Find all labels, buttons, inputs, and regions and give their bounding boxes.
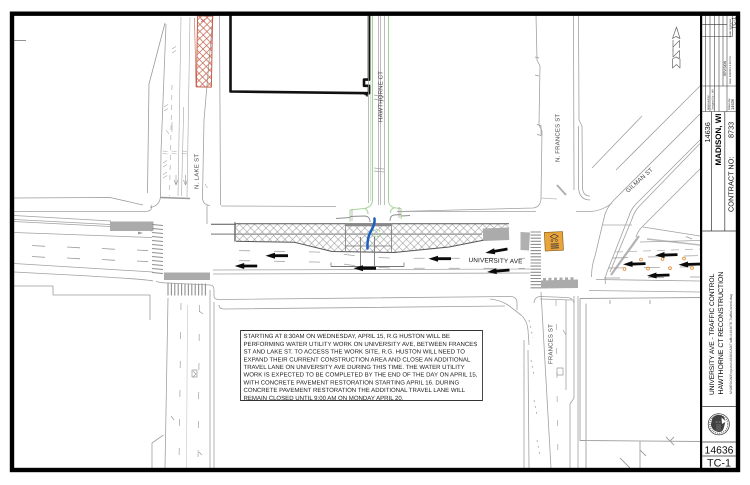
svg-text:14636: 14636 — [730, 98, 735, 110]
svg-text:WORK IS EXPECTED TO BE COMPLET: WORK IS EXPECTED TO BE COMPLETED BY THE … — [244, 372, 478, 379]
svg-text:N. LAKE ST: N. LAKE ST — [194, 154, 201, 189]
svg-text:Date: 4/9/2015 2:35 PM: Date: 4/9/2015 2:35 PM — [729, 57, 732, 84]
svg-text:FRANCES ST: FRANCES ST — [548, 324, 555, 364]
svg-text:Designed By: LMB: Designed By: LMB — [712, 89, 715, 110]
svg-text:MADISON, WI: MADISON, WI — [714, 114, 723, 166]
svg-text:Scale: Unknown: Scale: Unknown — [729, 18, 732, 37]
svg-text:8733: 8733 — [726, 122, 735, 138]
svg-text:Approved By:: Approved By: — [707, 95, 710, 110]
svg-text:TRAVEL LANE ON UNIVERSITY AVE: TRAVEL LANE ON UNIVERSITY AVE DURING THI… — [244, 364, 465, 371]
svg-text:EXPAND THEIR CURRENT CONSTRUCT: EXPAND THEIR CURRENT CONSTRUCTION AREA A… — [244, 356, 471, 363]
svg-text:14636: 14636 — [703, 122, 712, 142]
svg-text:CONTRACT NO:: CONTRACT NO: — [726, 157, 735, 212]
svg-text:N. FRANCES ST: N. FRANCES ST — [555, 114, 562, 162]
svg-text:14636: 14636 — [705, 446, 734, 457]
svg-text:PERFORMING WATER UTILITY WORK: PERFORMING WATER UTILITY WORK ON UNIVERS… — [244, 341, 478, 348]
svg-text:UNIVERSITY AVE - TRAFFIC CONTR: UNIVERSITY AVE - TRAFFIC CONTROL — [709, 273, 716, 395]
svg-text:REMAIN CLOSED UNTIL 9:00 AM ON: REMAIN CLOSED UNTIL 9:00 AM ON MONDAY AP… — [244, 395, 404, 402]
svg-text:WITH CONCRETE PAVEMENT RESTORA: WITH CONCRETE PAVEMENT RESTORATION START… — [244, 379, 460, 386]
svg-text:CONCRETE PAVEMENT RESTORATION: CONCRETE PAVEMENT RESTORATION THE ADDITI… — [244, 387, 466, 394]
svg-text:M:\DESIGN\Projects\14636\CAD\T: M:\DESIGN\Projects\14636\CAD\Traffic\146… — [729, 294, 733, 394]
svg-text:HAWTHORNE CT: HAWTHORNE CT — [378, 71, 385, 122]
svg-text:REVISION: REVISION — [723, 60, 727, 76]
svg-text:STARTING AT 8:30AM ON WEDNESDA: STARTING AT 8:30AM ON WEDNESDAY, APRIL 1… — [244, 333, 450, 340]
svg-text:HAWTHORNE CT RECONSTRUCTION: HAWTHORNE CT RECONSTRUCTION — [718, 272, 725, 395]
svg-text:ST AND LAKE ST. TO ACCESS THE: ST AND LAKE ST. TO ACCESS THE WORK SITE,… — [244, 349, 466, 356]
svg-text:UNIVERSITY AVE: UNIVERSITY AVE — [468, 257, 522, 265]
